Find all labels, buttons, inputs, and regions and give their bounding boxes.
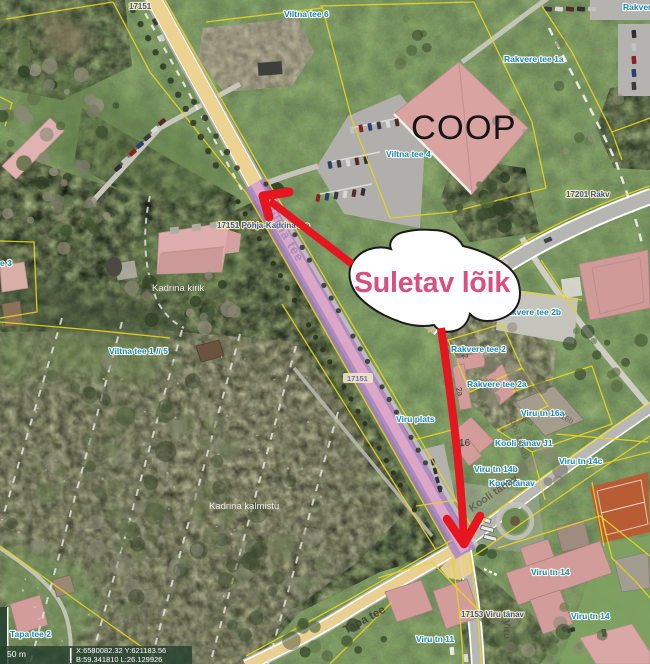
svg-text:16: 16 — [459, 438, 471, 449]
svg-text:e 3: e 3 — [0, 258, 12, 268]
svg-text:Rakvere tee 2a: Rakvere tee 2a — [467, 379, 527, 389]
svg-text:17151: 17151 — [347, 374, 368, 383]
svg-text:Kadrina kirik: Kadrina kirik — [152, 283, 205, 294]
svg-text:Rakvere: Rakvere — [623, 2, 650, 12]
svg-text:X:6580082.32 Y:621183.56: X:6580082.32 Y:621183.56 — [76, 646, 166, 655]
svg-text:Viru: Viru — [500, 619, 512, 639]
svg-text:Kadrina kalmistu: Kadrina kalmistu — [209, 501, 279, 512]
svg-text:Rakvere tee 1a: Rakvere tee 1a — [504, 54, 564, 64]
svg-text:17153 Viru tänav: 17153 Viru tänav — [461, 610, 525, 619]
svg-text:Viltna tee 1 // 5: Viltna tee 1 // 5 — [109, 346, 168, 356]
svg-text:COOP: COOP — [411, 109, 517, 147]
svg-text:Tapa tee 2: Tapa tee 2 — [10, 629, 51, 639]
svg-text:B:59.341810 L:26.129926: B:59.341810 L:26.129926 — [76, 655, 162, 664]
svg-text:Viru tn 11: Viru tn 11 — [416, 634, 454, 644]
svg-text:Viru plats: Viru plats — [396, 414, 435, 424]
svg-text:Viltna tee 6: Viltna tee 6 — [284, 9, 329, 19]
svg-text:17151: 17151 — [129, 2, 152, 11]
svg-text:Viru tn 14: Viru tn 14 — [531, 567, 570, 577]
svg-text:Rakvere tee 2: Rakvere tee 2 — [451, 344, 506, 354]
svg-text:17201 Rakv: 17201 Rakv — [566, 190, 610, 199]
svg-text:50 m: 50 m — [7, 649, 26, 659]
svg-text:Viltna tee 4: Viltna tee 4 — [386, 149, 431, 159]
svg-text:Viru tn 14c: Viru tn 14c — [559, 456, 603, 466]
svg-text:Viru tn 14: Viru tn 14 — [571, 611, 610, 621]
svg-text:Suletav lõik: Suletav lõik — [354, 267, 510, 299]
